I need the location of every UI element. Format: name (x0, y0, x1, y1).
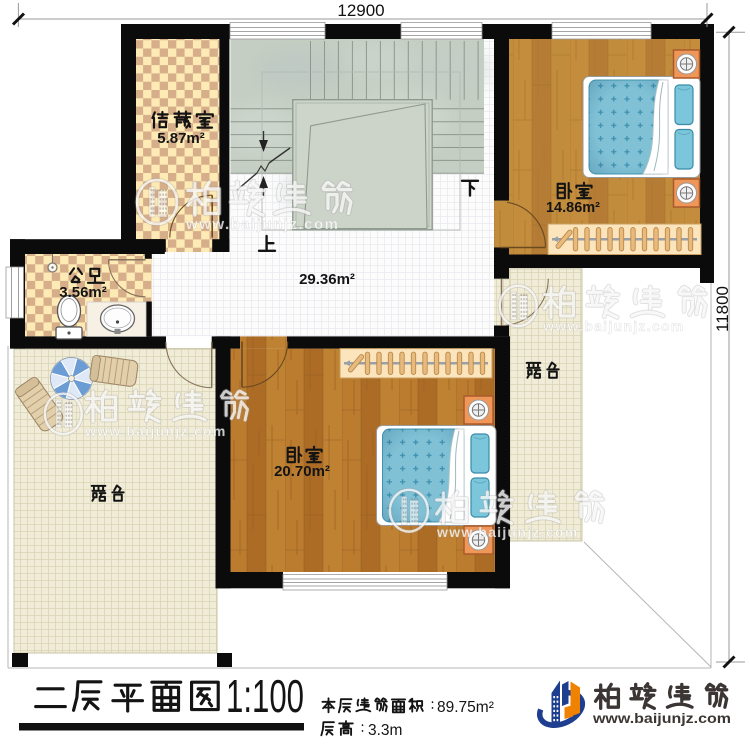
svg-text:5.87m²: 5.87m² (157, 130, 205, 147)
svg-text:20.70m²: 20.70m² (274, 463, 330, 480)
svg-text:3.56m²: 3.56m² (59, 284, 107, 301)
svg-text:29.36m²: 29.36m² (299, 271, 355, 288)
svg-text:www.baijunjz.com: www.baijunjz.com (185, 216, 339, 233)
svg-text:12900: 12900 (337, 1, 384, 20)
svg-text:www.baijunjz.com: www.baijunjz.com (84, 423, 227, 439)
svg-text:11800: 11800 (713, 286, 732, 332)
svg-text:www.baijunjz.com: www.baijunjz.com (542, 318, 685, 334)
svg-text:14.86m²: 14.86m² (546, 200, 600, 216)
svg-text:www.baijunjz.com: www.baijunjz.com (436, 524, 579, 540)
svg-text:1:100: 1:100 (226, 670, 304, 722)
svg-text:89.75m²: 89.75m² (437, 699, 494, 716)
svg-text:www.baijunjz.com: www.baijunjz.com (592, 711, 731, 726)
svg-text:3.3m: 3.3m (368, 722, 402, 739)
